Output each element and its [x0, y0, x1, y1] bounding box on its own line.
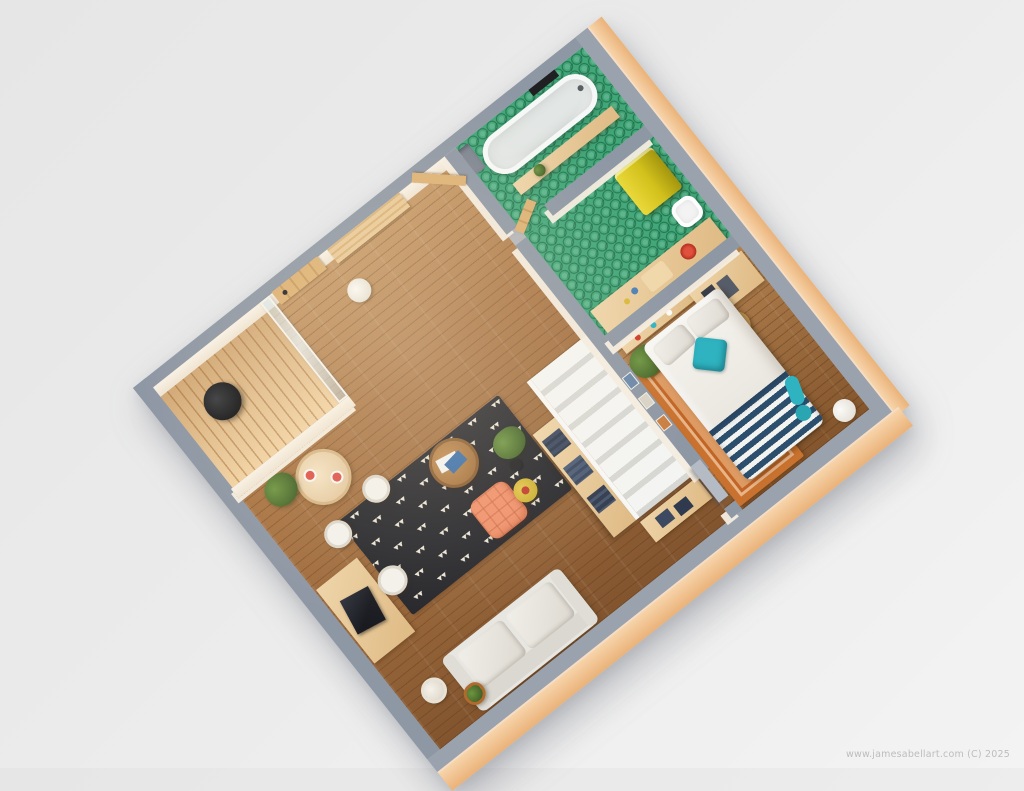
- watermark: www.jamesabellart.com (C) 2025: [846, 749, 1010, 760]
- floor-plan-shadow: [0, 0, 1024, 768]
- teal-pillow: [692, 337, 727, 372]
- floor-plan: [133, 28, 892, 772]
- render-canvas: www.jamesabellart.com (C) 2025: [0, 0, 1024, 768]
